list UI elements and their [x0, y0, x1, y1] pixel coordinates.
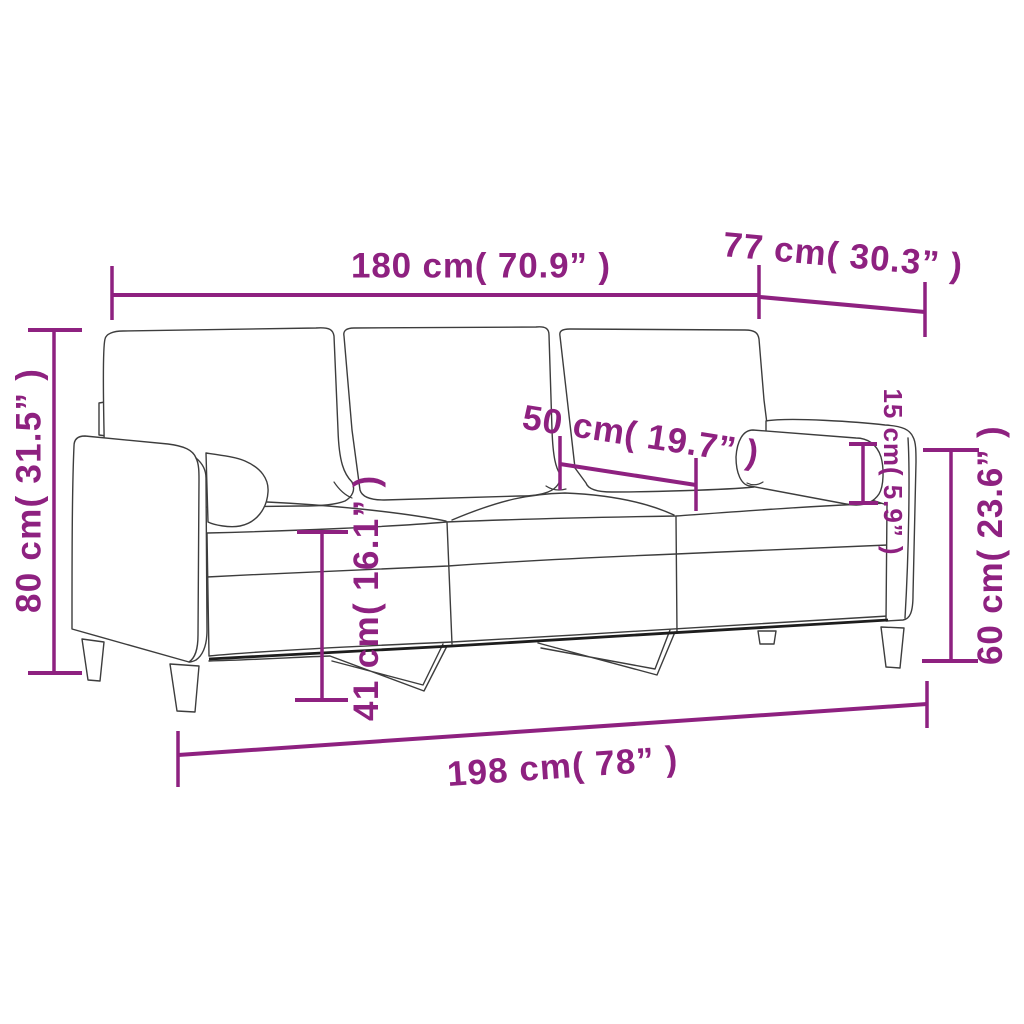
svg-text:15 cm( 5.9” ): 15 cm( 5.9” ) [878, 389, 908, 556]
svg-text:198 cm( 78” ): 198 cm( 78” ) [446, 739, 680, 794]
svg-text:80 cm( 31.5” ): 80 cm( 31.5” ) [10, 368, 49, 613]
svg-text:60 cm( 23.6” ): 60 cm( 23.6” ) [971, 425, 1010, 665]
svg-text:180 cm( 70.9” ): 180 cm( 70.9” ) [351, 247, 611, 286]
svg-text:41 cm( 16.1” ): 41 cm( 16.1” ) [347, 474, 386, 721]
